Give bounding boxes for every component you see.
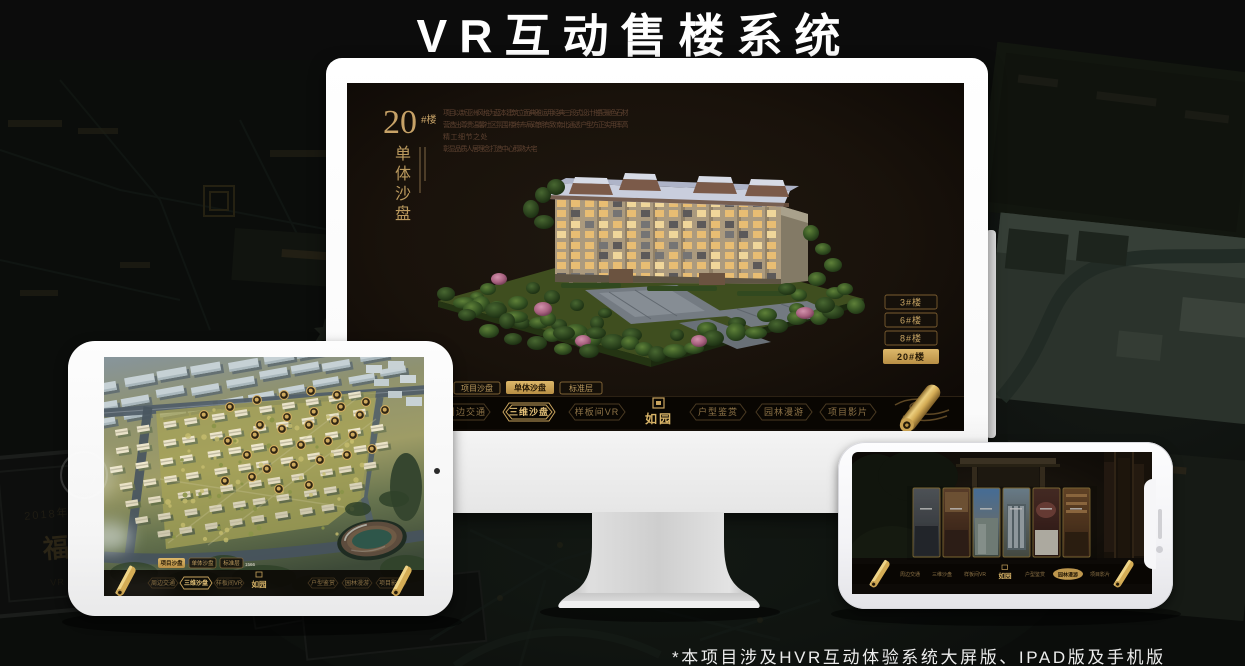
svg-text:项目以新亚洲风格为蓝本 建筑立面典雅 运用经典三段式设计 搭: 项目以新亚洲风格为蓝本 建筑立面典雅 运用经典三段式设计 搭配暖色石材 [443, 108, 629, 117]
svg-text:精工细节之处: 精工细节之处 [443, 132, 488, 141]
svg-text:项目沙盘: 项目沙盘 [461, 383, 493, 393]
svg-text:园林漫游: 园林漫游 [345, 579, 369, 587]
svg-text:项目沙盘: 项目沙盘 [160, 559, 183, 567]
svg-text:样板间VR: 样板间VR [964, 571, 986, 578]
svg-text:周边交通: 周边交通 [151, 579, 175, 587]
svg-text:周边交通: 周边交通 [900, 571, 920, 578]
svg-text:如园: 如园 [999, 571, 1013, 580]
svg-text:户型鉴赏: 户型鉴赏 [698, 406, 738, 417]
svg-text:3#楼: 3#楼 [900, 297, 922, 308]
svg-text:标准层: 标准层 [223, 559, 240, 567]
svg-text:标准层: 标准层 [569, 383, 593, 393]
svg-text:#楼: #楼 [421, 113, 437, 126]
svg-text:园林漫游: 园林漫游 [1058, 572, 1078, 579]
svg-text:样板间VR: 样板间VR [575, 406, 620, 417]
svg-text:8#楼: 8#楼 [900, 333, 922, 344]
svg-text:三维沙盘: 三维沙盘 [509, 406, 549, 417]
svg-text:样板间VR: 样板间VR [216, 579, 243, 587]
svg-text:项目影片: 项目影片 [1090, 571, 1110, 578]
svg-text:户型鉴赏: 户型鉴赏 [311, 579, 335, 587]
svg-text:沙: 沙 [395, 186, 411, 203]
svg-text:盘: 盘 [395, 204, 411, 223]
svg-text:彰显品质人居理念 打造中心醇熟大宅: 彰显品质人居理念 打造中心醇熟大宅 [443, 144, 538, 153]
svg-text:单: 单 [395, 145, 411, 163]
svg-text:园林漫游: 园林漫游 [764, 406, 804, 417]
svg-text:营造出尊贵温馨社区氛围 楼栋布局疏朗有致 南北通透 户型方正: 营造出尊贵温馨社区氛围 楼栋布局疏朗有致 南北通透 户型方正实用率高 [443, 120, 629, 129]
svg-text:三维沙盘: 三维沙盘 [184, 579, 208, 587]
svg-text:项目影片: 项目影片 [828, 406, 868, 417]
svg-text:6#楼: 6#楼 [900, 315, 922, 326]
svg-text:单体沙盘: 单体沙盘 [514, 383, 546, 393]
svg-text:20: 20 [383, 104, 417, 141]
svg-text:20#楼: 20#楼 [897, 351, 925, 362]
svg-text:1566: 1566 [245, 562, 256, 567]
svg-text:户型鉴赏: 户型鉴赏 [1025, 571, 1045, 578]
svg-text:单体沙盘: 单体沙盘 [191, 559, 214, 567]
svg-text:如园: 如园 [252, 579, 267, 589]
svg-text:如园: 如园 [645, 411, 673, 426]
svg-text:体: 体 [395, 165, 411, 183]
svg-text:三维沙盘: 三维沙盘 [932, 571, 952, 578]
